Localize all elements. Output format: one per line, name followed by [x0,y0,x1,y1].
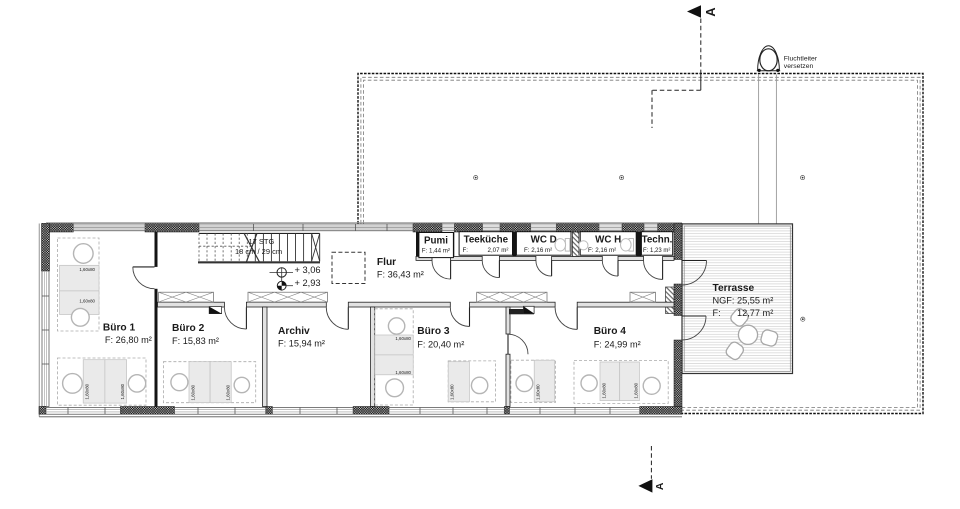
svg-text:WC D: WC D [531,235,557,246]
svg-text:F: 20,40 m²: F: 20,40 m² [417,339,464,349]
svg-text:Pumi: Pumi [424,236,448,247]
svg-text:1,60x80: 1,60x80 [395,370,411,375]
svg-text:+ 2,93: + 2,93 [295,278,321,288]
svg-text:F: 15,83 m²: F: 15,83 m² [172,336,219,346]
svg-text:F: 26,80 m²: F: 26,80 m² [105,335,152,345]
svg-text:Techn.: Techn. [642,235,673,246]
svg-text:18 cm / 29 cm: 18 cm / 29 cm [235,247,282,256]
svg-text:A: A [703,7,718,17]
svg-text:Büro 3: Büro 3 [417,326,450,337]
svg-text:F: 2,16 m²: F: 2,16 m² [588,247,616,254]
svg-text:1,60x80: 1,60x80 [120,383,125,399]
svg-text:F: 1,44 m²: F: 1,44 m² [422,248,450,255]
svg-text:Büro 2: Büro 2 [172,323,205,334]
svg-text:1,60x80: 1,60x80 [601,382,606,398]
svg-text:F: 24,99 m²: F: 24,99 m² [594,339,641,349]
svg-text:Flur: Flur [377,257,396,268]
svg-text:F:: F: [463,247,469,254]
svg-text:Büro 1: Büro 1 [103,322,136,333]
svg-text:Archiv: Archiv [278,326,310,337]
svg-text:versetzen: versetzen [784,63,814,70]
svg-text:F: 15,94 m²: F: 15,94 m² [278,338,325,348]
svg-text:1,60x80: 1,60x80 [536,384,541,400]
svg-text:2,07 m²: 2,07 m² [488,247,509,254]
svg-text:1,60x80: 1,60x80 [79,298,95,303]
svg-text:12,77 m²: 12,77 m² [737,308,773,318]
svg-text:1,60x80: 1,60x80 [634,382,639,398]
svg-text:NGF: 25,55 m²: NGF: 25,55 m² [713,295,774,305]
svg-text:Teeküche: Teeküche [464,235,509,246]
svg-text:Fluchtleiter: Fluchtleiter [784,56,818,63]
svg-text:F: 1,23 m²: F: 1,23 m² [643,248,670,254]
svg-text:WC H: WC H [595,235,621,246]
svg-text:17 STG: 17 STG [249,237,275,246]
svg-text:1,60x80: 1,60x80 [85,383,90,399]
svg-text:+ 3,06: + 3,06 [295,265,321,275]
svg-text:F:: F: [713,308,721,318]
svg-text:1,60x80: 1,60x80 [395,336,411,341]
svg-text:1,60x80: 1,60x80 [79,267,95,272]
svg-text:F: 2,16 m²: F: 2,16 m² [524,247,552,254]
svg-text:Büro 4: Büro 4 [594,326,627,337]
svg-text:1,60x80: 1,60x80 [450,384,455,400]
svg-text:A: A [654,482,666,490]
svg-text:F: 36,43 m²: F: 36,43 m² [377,269,424,279]
svg-text:Terrasse: Terrasse [713,283,755,294]
svg-text:1,60x80: 1,60x80 [225,384,230,400]
svg-text:1,60x80: 1,60x80 [190,384,195,400]
